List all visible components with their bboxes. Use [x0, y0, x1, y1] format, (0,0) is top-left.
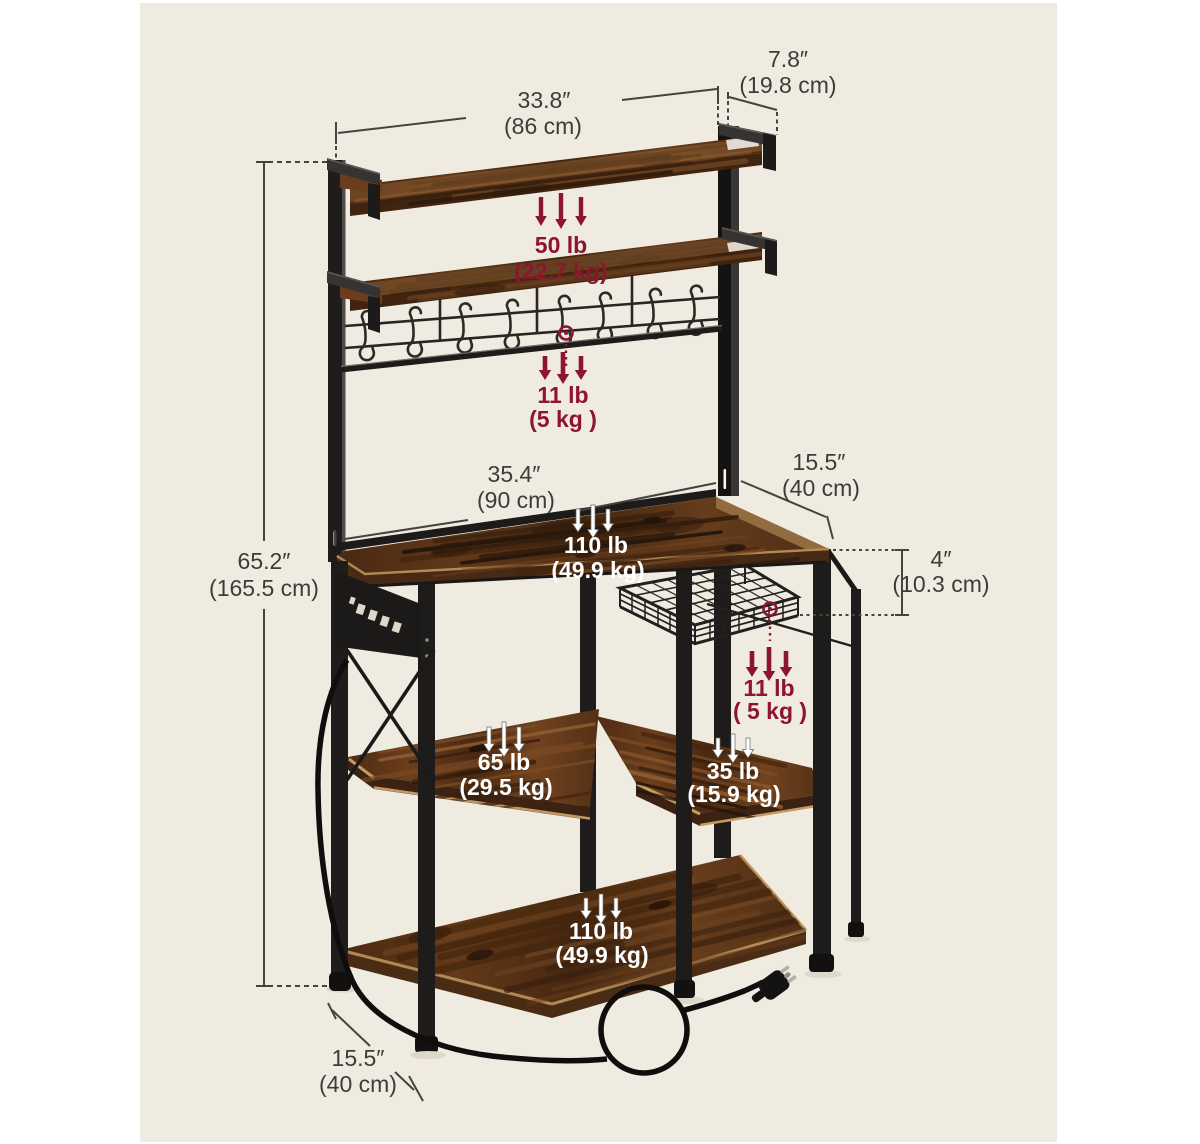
svg-text:(22.7 kg): (22.7 kg): [514, 258, 607, 284]
svg-text:(49.9 kg): (49.9 kg): [551, 557, 644, 583]
svg-text:(40 cm): (40 cm): [782, 475, 860, 501]
svg-text:50 lb: 50 lb: [535, 232, 587, 258]
svg-text:65.2″: 65.2″: [238, 548, 291, 574]
svg-text:(15.9 kg): (15.9 kg): [687, 781, 780, 807]
svg-text:4″: 4″: [931, 546, 952, 572]
svg-text:(49.9 kg): (49.9 kg): [555, 942, 648, 968]
svg-text:(10.3 cm): (10.3 cm): [892, 571, 989, 597]
svg-text:(40 cm): (40 cm): [319, 1071, 397, 1097]
svg-text:35.4″: 35.4″: [488, 461, 541, 487]
svg-text:110 lb: 110 lb: [564, 532, 628, 558]
svg-text:110 lb: 110 lb: [569, 918, 633, 944]
svg-text:(165.5 cm): (165.5 cm): [209, 575, 319, 601]
svg-text:(5 kg ): (5 kg ): [529, 406, 597, 432]
svg-text:( 5 kg ): ( 5 kg ): [733, 698, 807, 724]
svg-text:(19.8 cm): (19.8 cm): [739, 72, 836, 98]
svg-text:11 lb: 11 lb: [537, 382, 588, 408]
svg-text:15.5″: 15.5″: [793, 449, 846, 475]
svg-text:7.8″: 7.8″: [768, 46, 808, 72]
svg-text:(29.5 kg): (29.5 kg): [459, 774, 552, 800]
svg-text:65 lb: 65 lb: [478, 749, 530, 775]
svg-text:(90 cm): (90 cm): [477, 487, 555, 513]
svg-text:33.8″: 33.8″: [518, 87, 571, 113]
svg-text:(86 cm): (86 cm): [504, 113, 582, 139]
svg-text:15.5″: 15.5″: [332, 1045, 385, 1071]
